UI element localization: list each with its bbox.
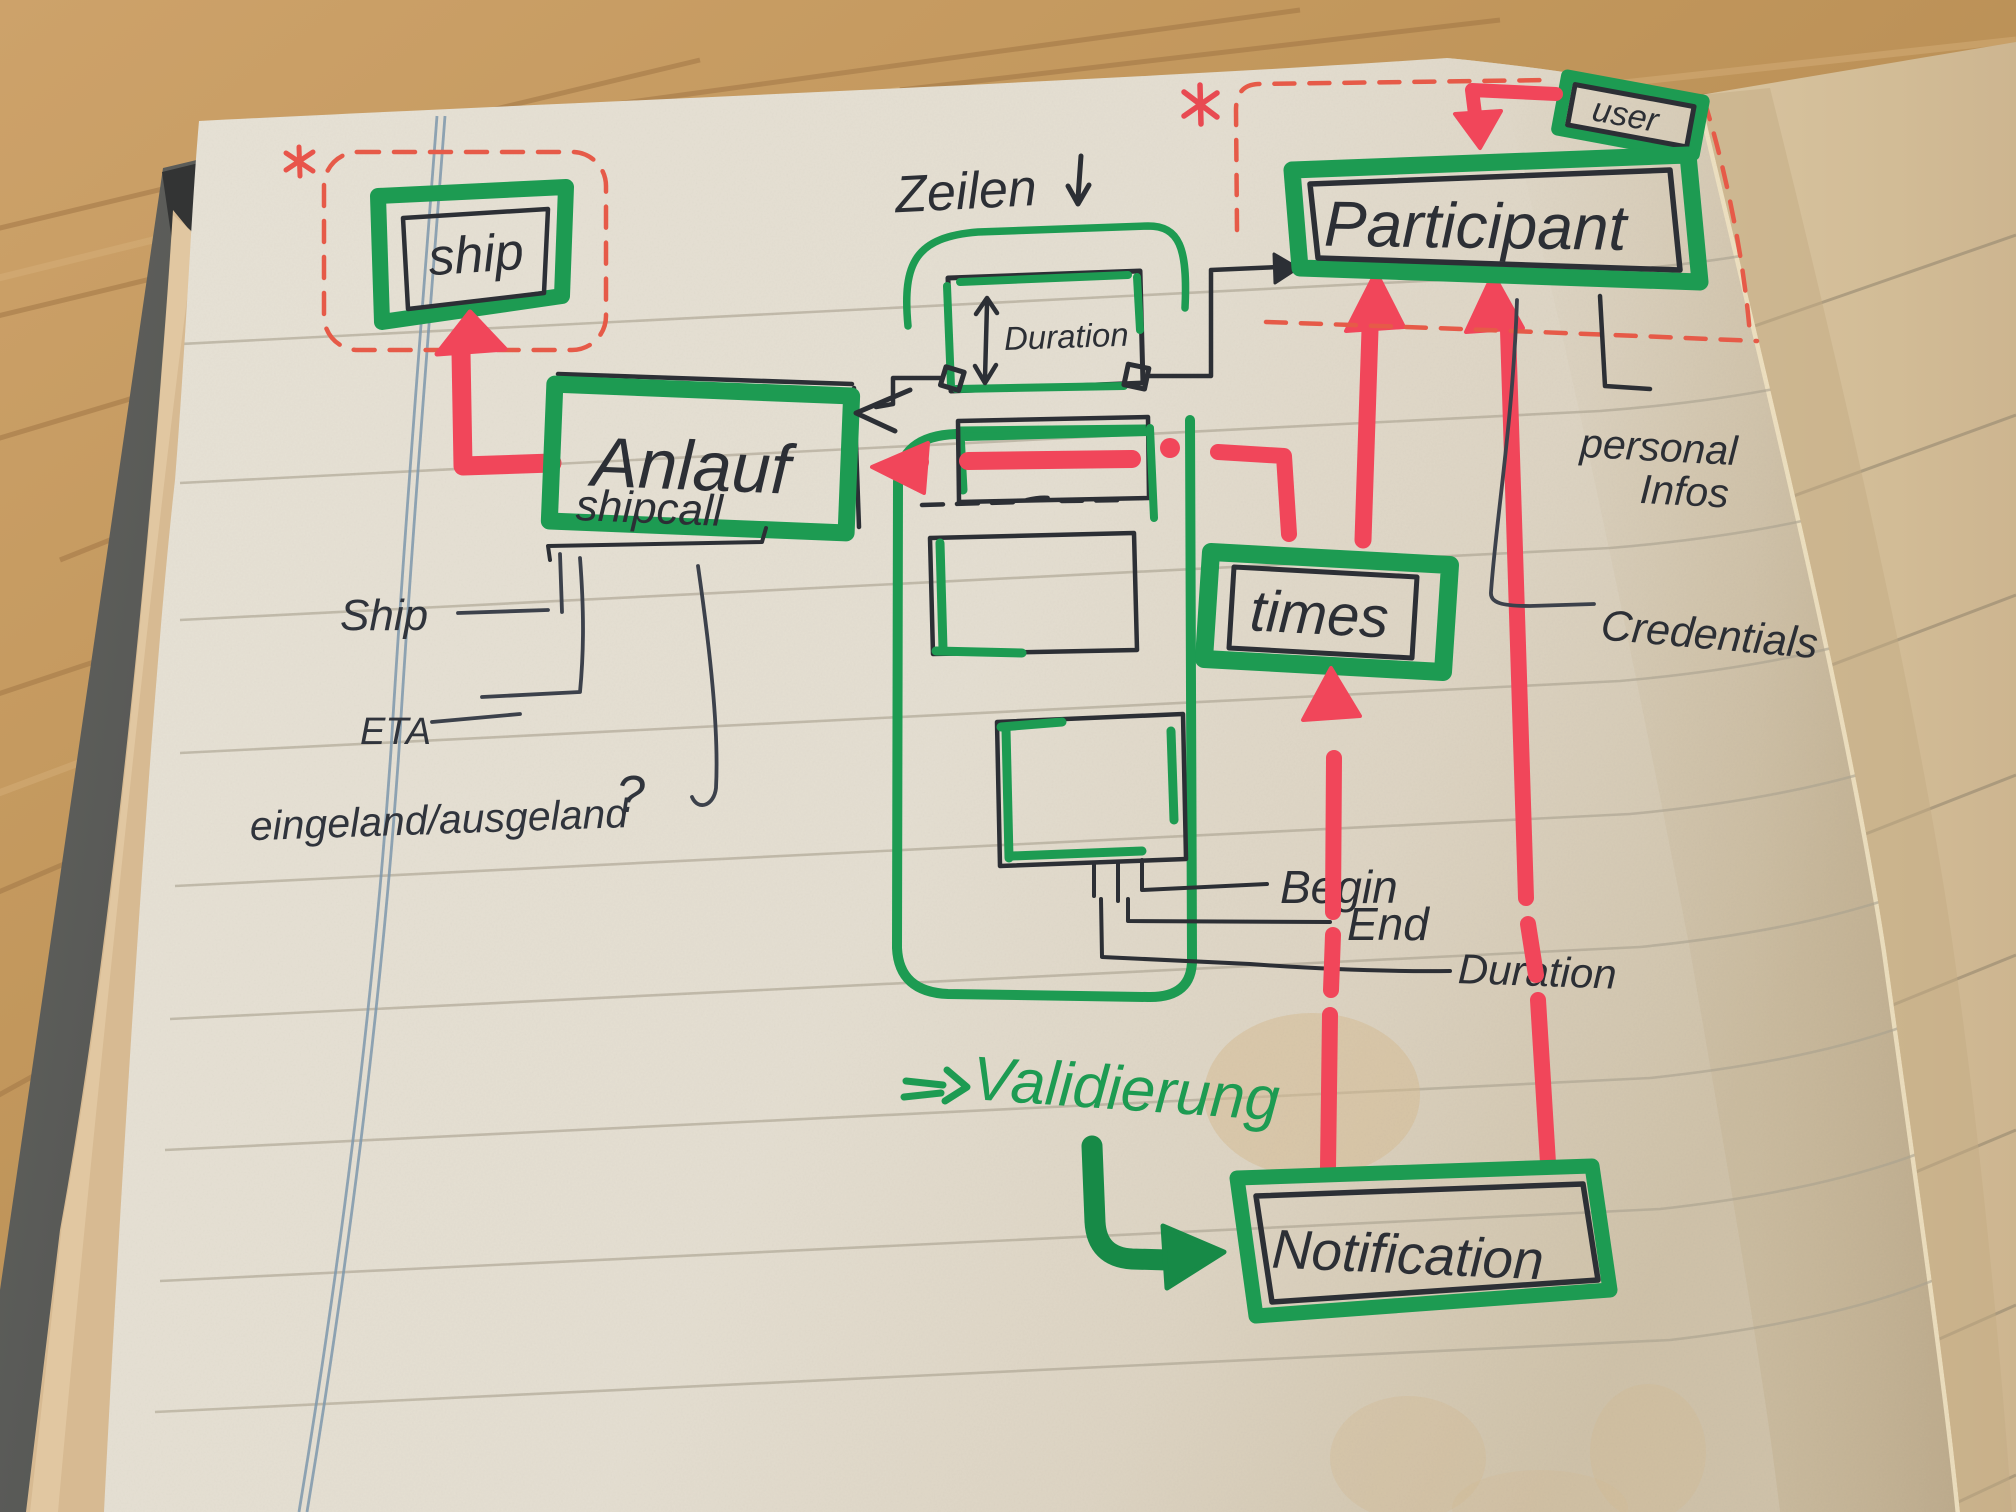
svg-text:End: End (1347, 898, 1430, 950)
svg-text:Duration: Duration (1003, 316, 1129, 357)
svg-text:Zeilen: Zeilen (892, 159, 1038, 224)
svg-text:Infos: Infos (1639, 466, 1730, 517)
svg-text:times: times (1248, 578, 1390, 650)
svg-text:shipcall: shipcall (575, 481, 725, 536)
svg-text:Participant: Participant (1323, 188, 1629, 264)
svg-text:ETA: ETA (360, 711, 431, 753)
svg-text:ship: ship (426, 223, 525, 288)
svg-text:Ship: Ship (340, 591, 428, 640)
svg-text:Notification: Notification (1271, 1218, 1546, 1292)
